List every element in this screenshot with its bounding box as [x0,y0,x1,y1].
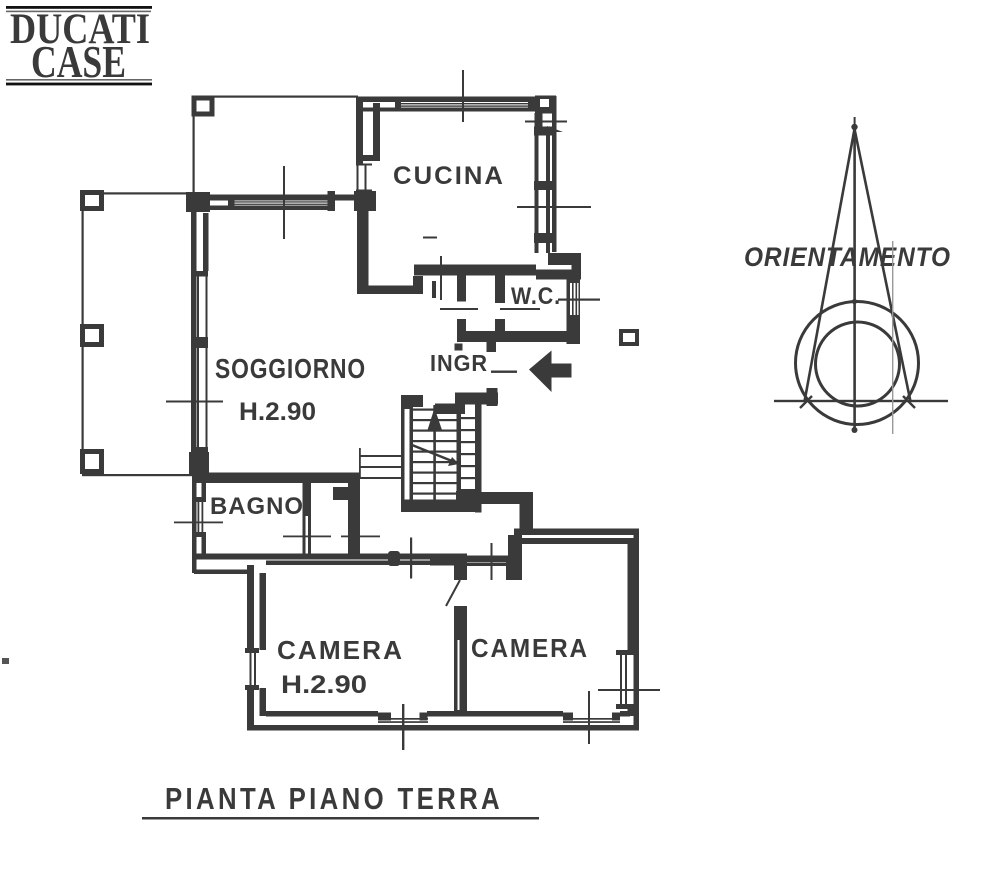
svg-text:CAMERA: CAMERA [471,633,589,663]
svg-text:H.2.90: H.2.90 [239,398,316,426]
svg-text:W.C.: W.C. [511,283,561,310]
svg-text:SOGGIORNO: SOGGIORNO [215,353,366,384]
svg-text:PIANTA PIANO TERRA: PIANTA PIANO TERRA [165,781,503,816]
svg-text:INGR: INGR [430,350,488,376]
svg-text:ORIENTAMENTO: ORIENTAMENTO [744,242,951,272]
svg-text:CUCINA: CUCINA [393,162,505,190]
svg-text:BAGNO: BAGNO [210,493,304,520]
svg-text:CAMERA: CAMERA [277,635,404,665]
svg-text:H.2.90: H.2.90 [281,671,367,699]
